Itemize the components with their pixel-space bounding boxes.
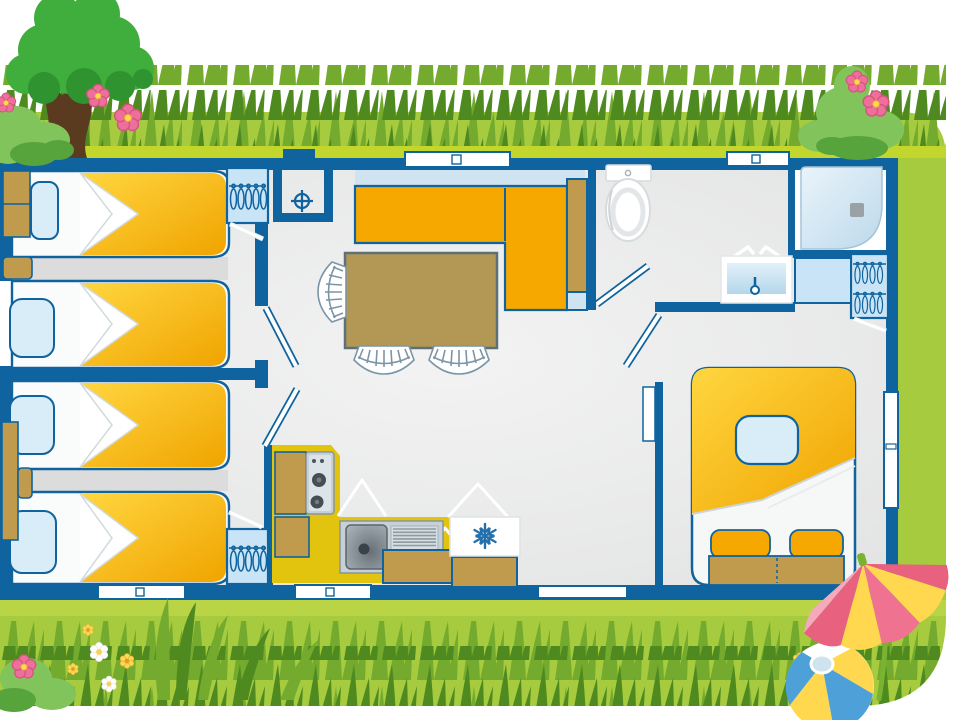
grass-bottom-strip — [0, 600, 946, 616]
ball-cap — [811, 655, 833, 673]
single-bed-3 — [10, 381, 229, 469]
wall-right — [886, 158, 898, 600]
pillow — [31, 182, 58, 239]
bed-cushion-1 — [711, 530, 770, 558]
wall-shower-left — [788, 170, 795, 258]
pillow — [10, 299, 54, 357]
double-bed-pillow — [736, 416, 798, 464]
window-top-bathroom-latch — [752, 155, 760, 163]
kitchen-cabinet-1 — [275, 452, 306, 514]
kitchen-unit-2 — [452, 557, 517, 587]
toilet — [606, 165, 651, 241]
wall-between-bedrooms-cap — [255, 360, 268, 388]
drainboard — [391, 526, 438, 550]
single-bed-4 — [10, 492, 229, 584]
wardrobe-3 — [851, 254, 888, 318]
wardrobe-1 — [227, 168, 268, 223]
wall-living-bathroom — [588, 170, 596, 310]
kitchen-cabinet-2 — [275, 517, 309, 557]
sofa-end-cushion — [567, 292, 587, 310]
floor-shadow-1 — [14, 257, 228, 280]
window-bottom-bedroom-latch — [136, 588, 144, 596]
wall-top-tab — [283, 149, 315, 158]
floorplan-illustration — [0, 0, 960, 720]
dining-table — [345, 253, 497, 348]
white-daisy-icon — [90, 642, 108, 661]
bed-cushion-2 — [790, 530, 843, 558]
closet-wall-right — [324, 170, 333, 222]
gas-hob — [306, 452, 334, 514]
yellow-daisy-icon — [120, 654, 134, 669]
window-right-bedroom — [884, 392, 898, 508]
washbasin — [721, 247, 792, 303]
floorplan — [0, 149, 898, 600]
wall-bedroom-right — [655, 382, 663, 585]
shower-tray — [801, 167, 882, 249]
shower — [801, 167, 882, 249]
single-bed-2 — [10, 281, 229, 368]
sliding-door-panel — [643, 387, 655, 441]
window-bottom-living — [538, 586, 627, 598]
fridge — [450, 517, 520, 556]
wardrobe-2 — [227, 529, 268, 584]
window-top-living-latch — [452, 155, 461, 164]
bedside-unit-1 — [3, 257, 32, 279]
yellow-daisy-icon — [83, 624, 93, 635]
yellow-daisy-icon — [68, 663, 78, 674]
wall-between-bedrooms — [0, 368, 268, 380]
bathroom-cabinet — [795, 258, 851, 303]
shower-drain — [850, 203, 864, 217]
single-bed-1 — [12, 171, 229, 257]
sofa-window-sill — [355, 170, 585, 186]
wardrobe-body — [227, 529, 268, 584]
window-right-bedroom-latch — [886, 444, 896, 449]
window-bottom-kitchen-latch — [326, 588, 334, 596]
headboard-panel — [2, 422, 18, 540]
illustration-stage — [0, 0, 960, 720]
sofa-backrest — [567, 179, 587, 292]
bedside-unit-2 — [18, 468, 32, 498]
floor-shadow-2 — [14, 470, 228, 491]
wardrobe-body — [227, 168, 268, 223]
white-daisy-icon — [102, 676, 117, 692]
kitchen-unit-1 — [383, 550, 452, 583]
